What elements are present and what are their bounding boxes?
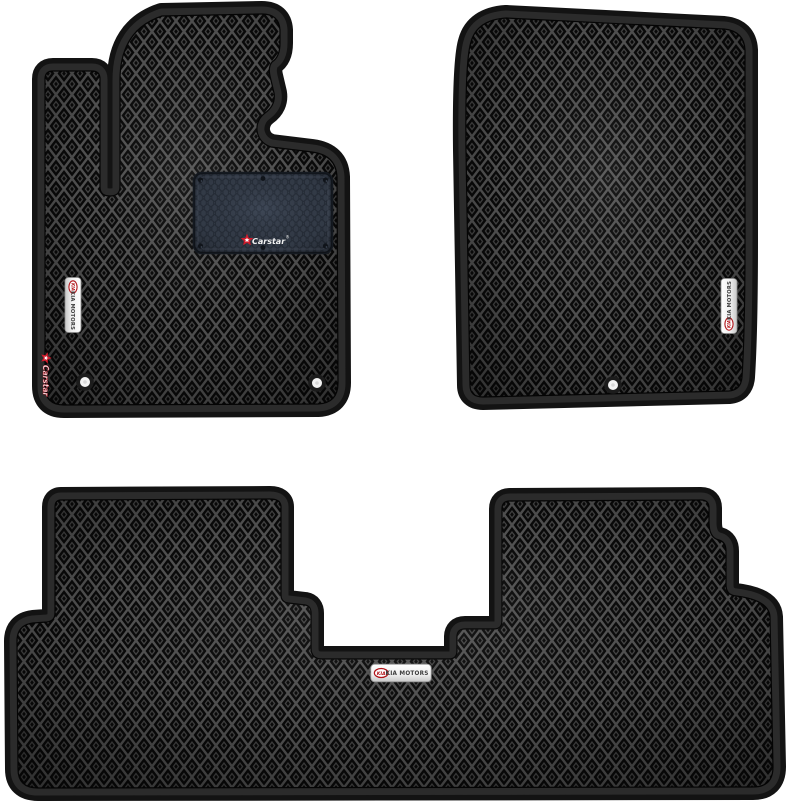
- heel-pad: Carstar ®: [194, 173, 332, 253]
- kia-motors-text: KIA MOTORS: [69, 291, 75, 330]
- kia-oval-text: KIA: [70, 283, 75, 291]
- rear-mat-shading: [17, 499, 773, 788]
- kia-motors-badge-driver: KIA KIA MOTORS: [65, 278, 81, 333]
- driver-front-mat: Carstar ® KIA KIA MOTORS Carstar: [41, 14, 338, 405]
- passenger-mat-shading: [466, 18, 745, 397]
- floor-mats-illustration: Carstar ® KIA KIA MOTORS Carstar KI: [0, 0, 800, 812]
- kia-motors-badge-passenger: KIA KIA MOTORS: [721, 279, 737, 334]
- carstar-embroidery-text: Carstar: [41, 365, 50, 397]
- passenger-front-mat: KIA KIA MOTORS: [466, 18, 745, 397]
- kia-motors-text: KIA MOTORS: [727, 281, 733, 320]
- rear-row-mat: KIA KIA MOTORS: [17, 499, 773, 788]
- carstar-wordmark: Carstar: [252, 237, 286, 246]
- kia-oval-text: KIA: [727, 320, 732, 328]
- kia-motors-text: KIA MOTORS: [386, 671, 429, 677]
- fastener-grommet: [308, 374, 326, 392]
- kia-motors-badge-rear: KIA KIA MOTORS: [371, 664, 432, 682]
- registered-mark: ®: [286, 235, 290, 240]
- product-photo: Carstar ® KIA KIA MOTORS Carstar KI: [0, 0, 800, 812]
- fastener-grommet: [76, 373, 94, 391]
- fastener-grommet: [604, 376, 622, 394]
